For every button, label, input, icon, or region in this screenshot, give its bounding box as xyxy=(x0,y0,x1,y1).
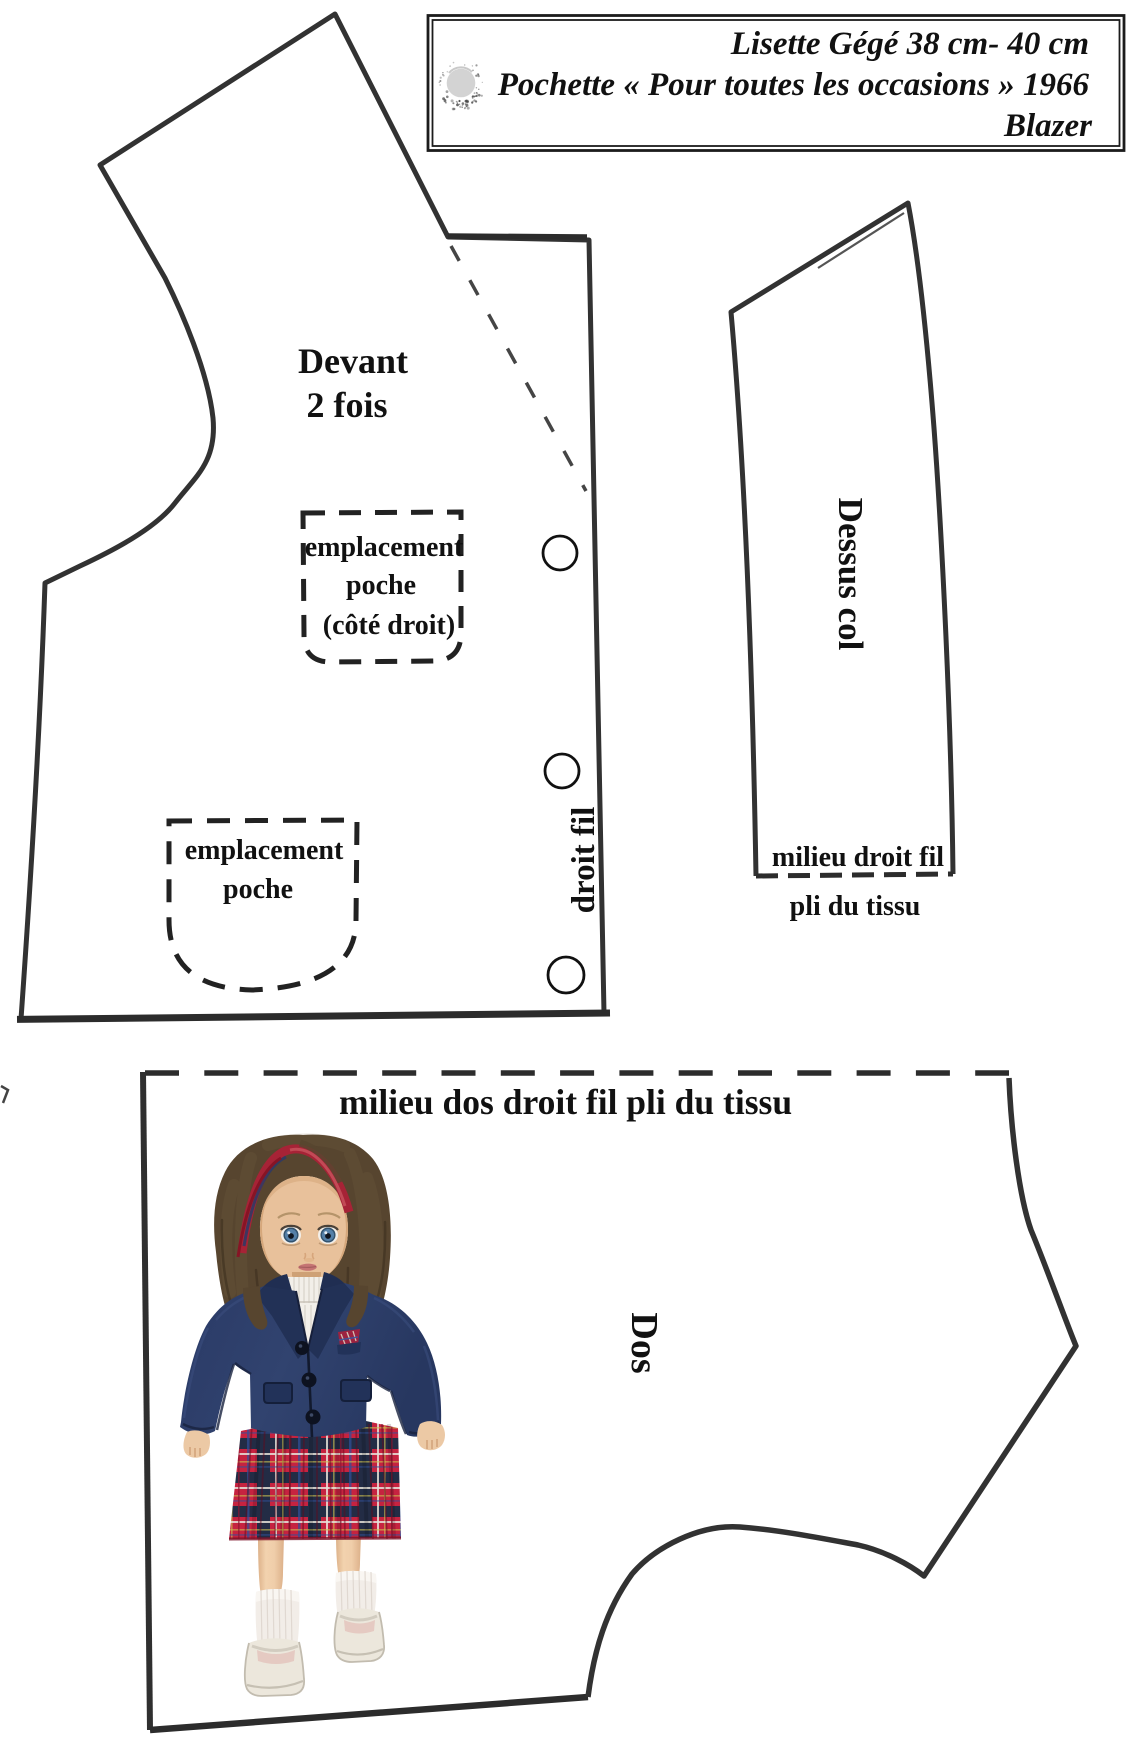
svg-text:emplacement: emplacement xyxy=(185,835,344,866)
svg-text:Devant: Devant xyxy=(298,341,408,381)
svg-text:Pochette « Pour toutes les occ: Pochette « Pour toutes les occasions » 1… xyxy=(497,67,1090,103)
svg-text:poche: poche xyxy=(346,570,416,601)
svg-text:emplacement: emplacement xyxy=(305,532,464,563)
svg-text:pli du tissu: pli du tissu xyxy=(790,891,921,922)
svg-text:(côté droit): (côté droit) xyxy=(323,610,455,641)
svg-text:2 fois: 2 fois xyxy=(307,385,388,425)
svg-text:Lisette Gégé 38 cm- 40 cm: Lisette Gégé 38 cm- 40 cm xyxy=(730,26,1089,62)
svg-text:Dos: Dos xyxy=(623,1312,665,1373)
svg-text:milieu droit fil: milieu droit fil xyxy=(772,842,944,873)
svg-text:Dessus col: Dessus col xyxy=(831,498,870,651)
svg-text:droit fil: droit fil xyxy=(566,807,602,914)
svg-text:poche: poche xyxy=(223,874,293,905)
svg-text:milieu dos droit fil pli du ti: milieu dos droit fil pli du tissu xyxy=(339,1082,792,1122)
svg-text:Blazer: Blazer xyxy=(1003,108,1093,144)
